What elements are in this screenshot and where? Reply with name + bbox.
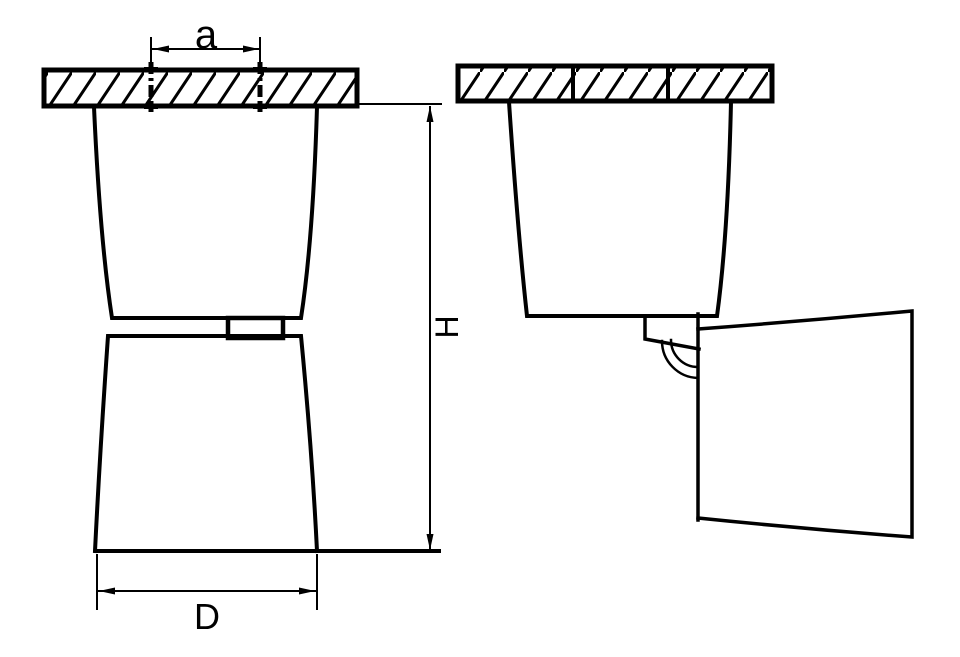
dimension-d-label: D	[194, 596, 220, 637]
ceiling-section-side	[458, 66, 772, 101]
lamp-head-outline	[698, 311, 912, 537]
dimension-mount-spacing: a	[151, 13, 260, 64]
arrowhead-top	[427, 106, 434, 122]
dimension-h-label: H	[429, 315, 465, 338]
lower-body-outline	[95, 336, 317, 551]
dimension-a-label: a	[195, 13, 218, 57]
arrowhead-left	[153, 46, 169, 53]
fixture-dimension-drawing: a D H	[0, 0, 960, 657]
side-view	[458, 66, 912, 537]
upper-body-outline	[94, 107, 317, 318]
dimension-diameter: D	[97, 555, 317, 637]
arrowhead-left	[99, 588, 115, 595]
dimension-height: H	[357, 104, 465, 550]
arrowhead-bottom	[427, 534, 434, 550]
side-body-outline	[509, 102, 731, 316]
front-view: a D	[44, 13, 441, 637]
arrowhead-right	[243, 46, 259, 53]
arrowhead-right	[299, 588, 315, 595]
technical-drawing-page: a D H	[0, 0, 960, 657]
ceiling-section-front	[44, 70, 357, 106]
